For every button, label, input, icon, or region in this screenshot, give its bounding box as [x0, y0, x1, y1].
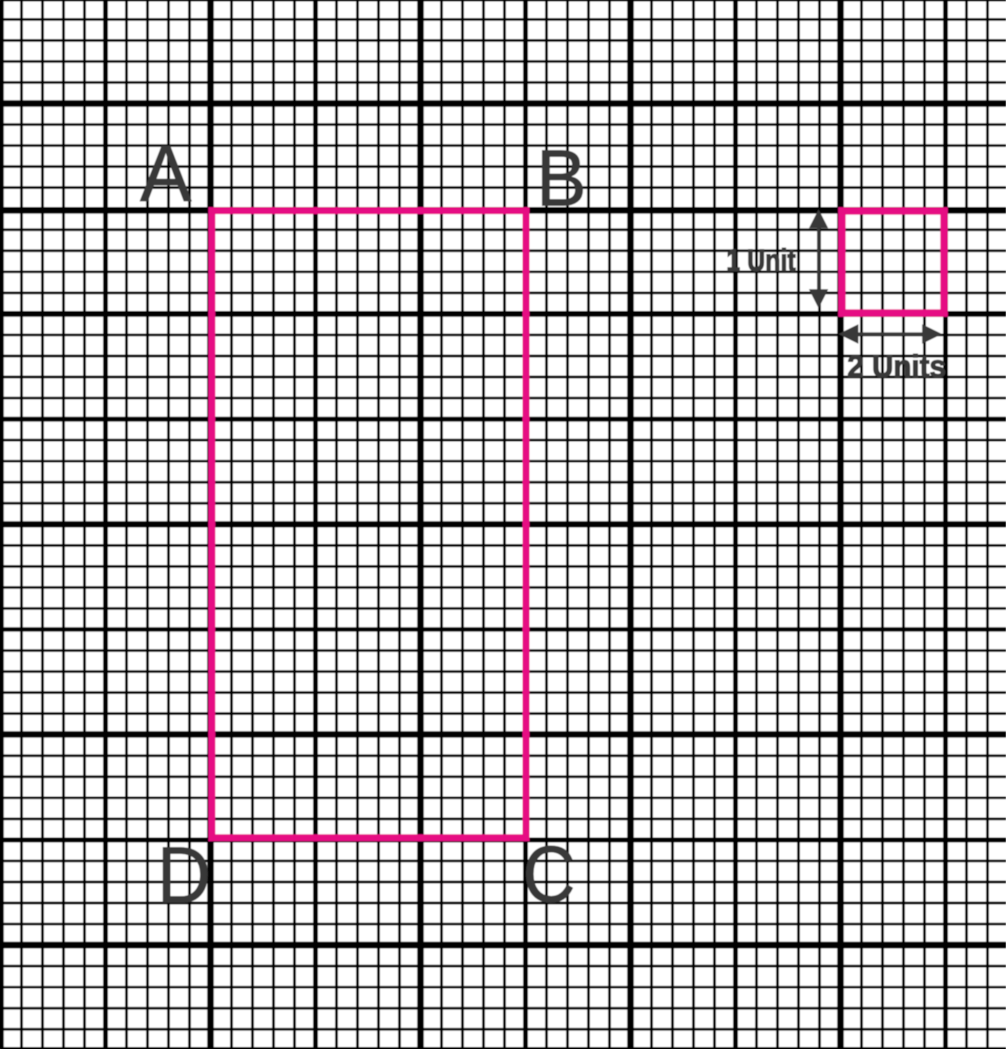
- svg-text:C: C: [523, 830, 576, 919]
- svg-text:B: B: [536, 135, 586, 223]
- svg-text:2 Units: 2 Units: [847, 349, 946, 384]
- svg-text:1 Unit: 1 Unit: [726, 244, 796, 279]
- svg-text:A: A: [140, 129, 192, 219]
- svg-text:D: D: [157, 831, 211, 920]
